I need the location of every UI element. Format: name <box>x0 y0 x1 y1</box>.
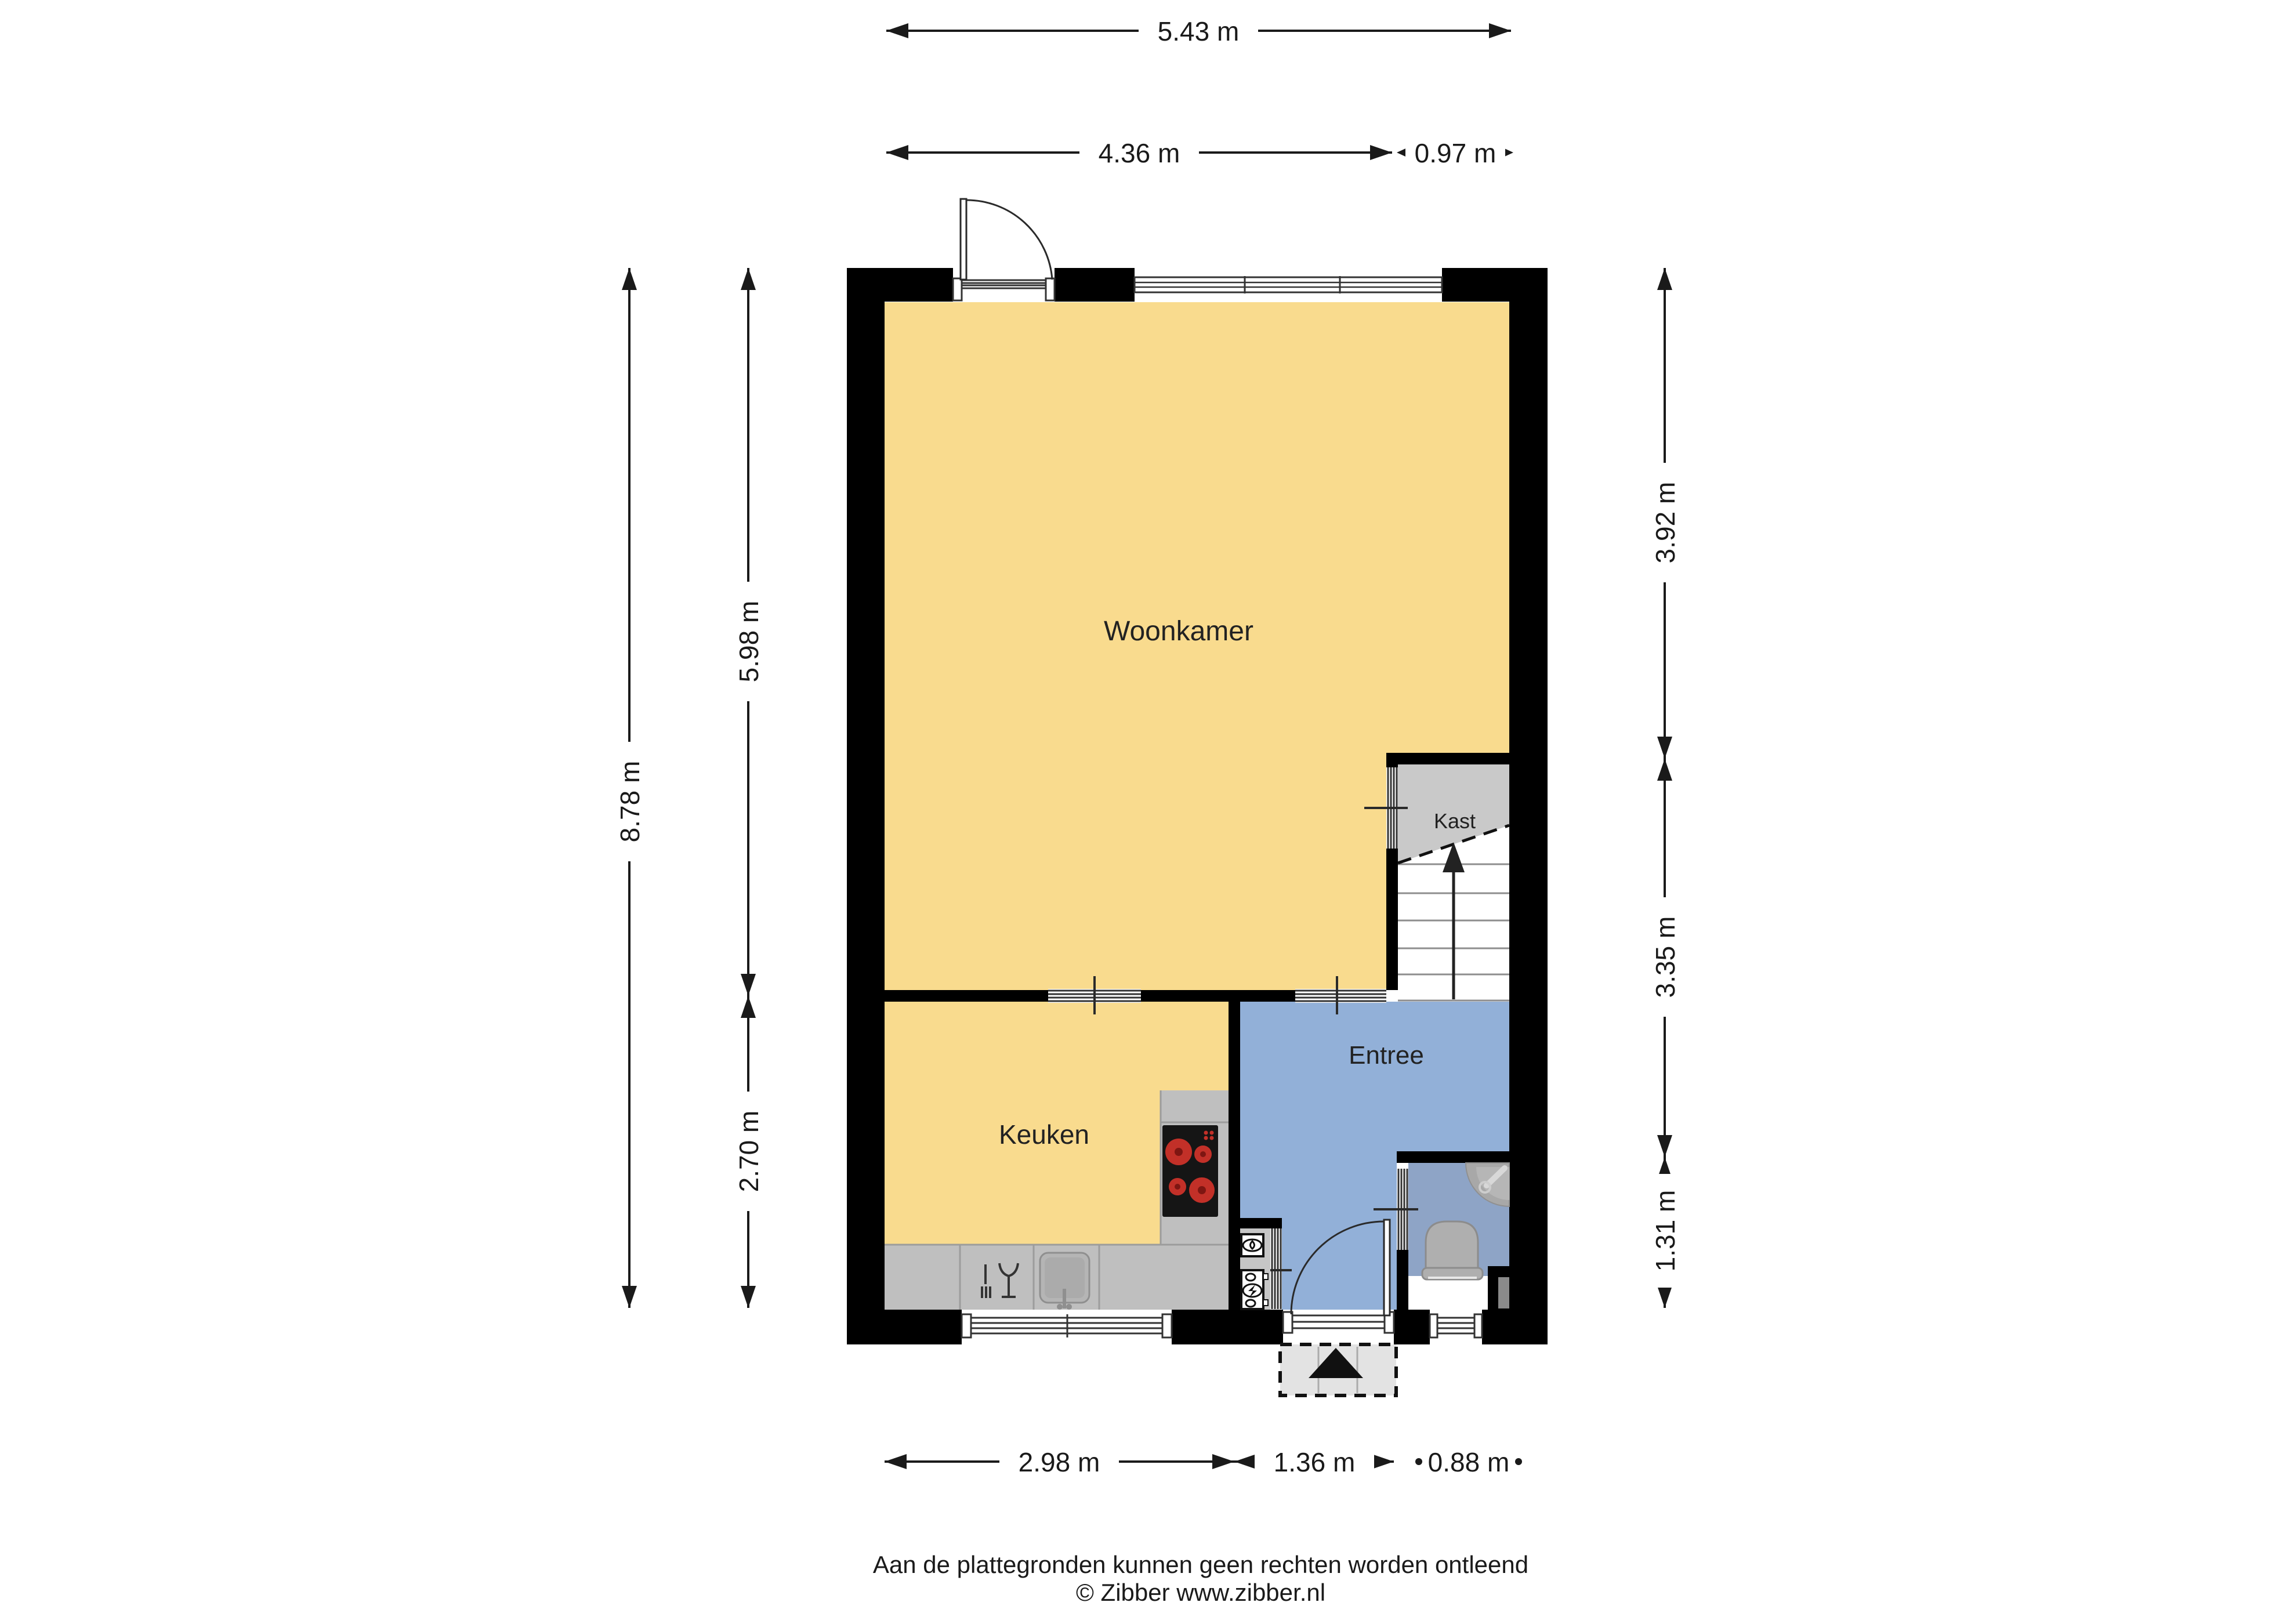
cooktop-icon <box>1162 1125 1218 1217</box>
dim-right-upper: 3.92 m <box>1644 268 1686 759</box>
entrance-mat <box>1280 1344 1396 1395</box>
dim-top-right: 0.97 m <box>1397 133 1513 172</box>
dim-top-total: 5.43 m <box>886 10 1511 52</box>
dim-left-total: 8.78 m <box>608 268 650 1308</box>
room-label-entree: Entree <box>1349 1041 1424 1070</box>
window-toilet <box>1430 1313 1482 1341</box>
dim-bottom-left: 2.98 m <box>885 1441 1234 1482</box>
svg-text:0.97 m: 0.97 m <box>1415 138 1497 168</box>
dim-left-lower: 2.70 m <box>727 996 769 1308</box>
dim-left-upper: 5.98 m <box>727 268 769 996</box>
back-door-swing-icon <box>961 199 1052 280</box>
electricity-meter-icon <box>1241 1270 1268 1309</box>
footer-copyright: © Zibber www.zibber.nl <box>1076 1579 1325 1606</box>
svg-text:1.36 m: 1.36 m <box>1274 1447 1356 1477</box>
svg-text:2.70 m: 2.70 m <box>734 1111 764 1192</box>
room-label-woonkamer: Woonkamer <box>1104 616 1253 647</box>
svg-text:4.36 m: 4.36 m <box>1099 138 1180 168</box>
back-door-opening <box>953 270 1055 300</box>
dim-top-left: 4.36 m <box>886 132 1392 173</box>
toilet-icon <box>1422 1221 1483 1279</box>
footer-disclaimer: Aan de plattegronden kunnen geen rechten… <box>873 1551 1528 1578</box>
room-label-kast: Kast <box>1434 809 1476 833</box>
svg-text:3.35 m: 3.35 m <box>1650 916 1680 998</box>
svg-text:0.88 m: 0.88 m <box>1428 1447 1510 1477</box>
front-door-opening <box>1283 1310 1394 1344</box>
svg-text:3.92 m: 3.92 m <box>1650 482 1680 564</box>
gas-meter-icon <box>1241 1234 1263 1256</box>
window-top <box>1135 276 1442 293</box>
svg-text:5.98 m: 5.98 m <box>734 601 764 683</box>
sink-icon <box>1040 1253 1089 1310</box>
window-kitchen <box>962 1313 1172 1341</box>
dim-right-middle: 3.35 m <box>1644 759 1686 1157</box>
svg-text:1.31 m: 1.31 m <box>1650 1190 1680 1272</box>
dim-bottom-right: 0.88 m <box>1415 1447 1522 1477</box>
svg-text:2.98 m: 2.98 m <box>1019 1447 1100 1477</box>
dim-bottom-middle: 1.36 m <box>1234 1441 1394 1482</box>
meter-cabinet <box>1240 1228 1270 1310</box>
floorplan-canvas: Woonkamer Keuken Entree Kast 5.43 m 4.36… <box>0 0 2290 1624</box>
room-label-keuken: Keuken <box>999 1119 1089 1150</box>
toilet-duct <box>1498 1277 1509 1308</box>
svg-text:8.78 m: 8.78 m <box>615 761 645 843</box>
dim-right-lower: 1.31 m <box>1644 1157 1686 1308</box>
svg-text:5.43 m: 5.43 m <box>1158 16 1240 46</box>
